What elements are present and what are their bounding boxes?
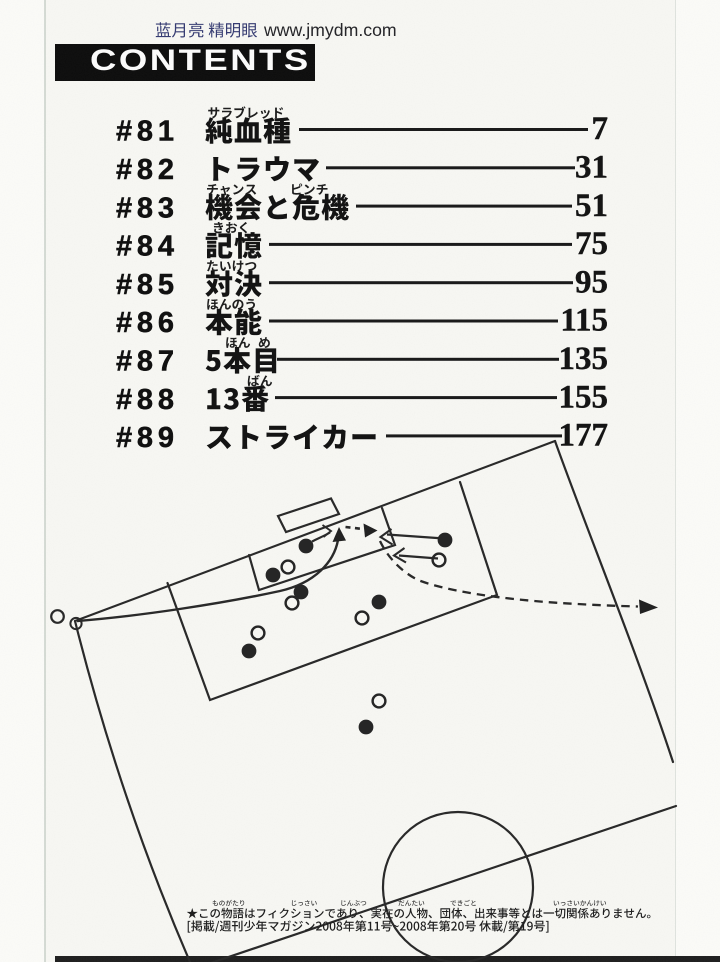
svg-text:115: 115 — [560, 303, 608, 339]
svg-text:#86: #86 — [116, 307, 179, 339]
svg-text:www.jmydm.com: www.jmydm.com — [263, 20, 397, 40]
svg-text:#82: #82 — [116, 154, 179, 186]
svg-text:#81: #81 — [116, 116, 179, 148]
svg-text:95: 95 — [575, 264, 608, 300]
svg-text:31: 31 — [575, 150, 608, 186]
svg-text:51: 51 — [575, 188, 608, 224]
svg-text:75: 75 — [575, 226, 608, 262]
svg-text:#84: #84 — [116, 231, 179, 263]
svg-text:#88: #88 — [116, 384, 179, 416]
svg-text:7: 7 — [592, 111, 609, 147]
svg-text:135: 135 — [559, 341, 609, 377]
svg-text:#89: #89 — [116, 422, 179, 454]
svg-text:155: 155 — [559, 379, 609, 415]
svg-text:#87: #87 — [116, 346, 179, 378]
svg-text:#83: #83 — [116, 192, 179, 224]
svg-text:177: 177 — [559, 418, 609, 454]
svg-text:#85: #85 — [116, 269, 179, 301]
